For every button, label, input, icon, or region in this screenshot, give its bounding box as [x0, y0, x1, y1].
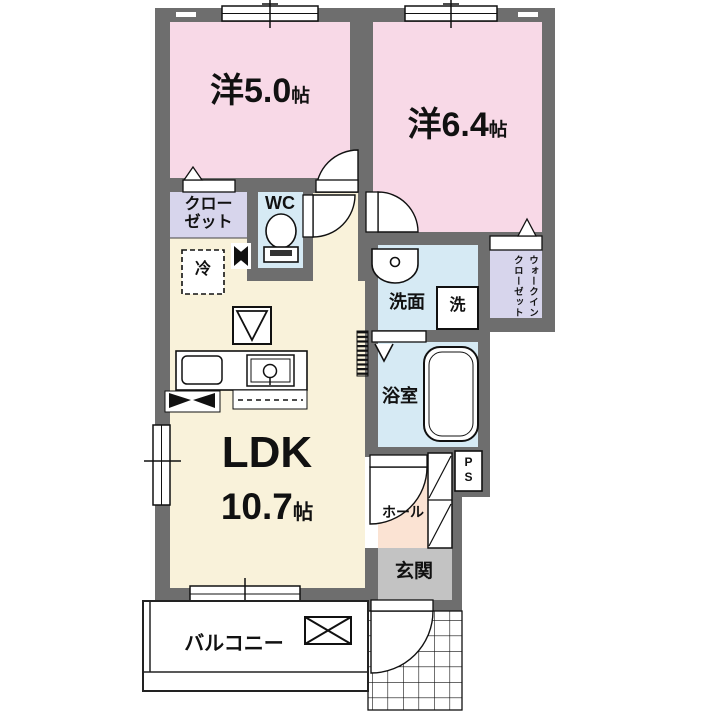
wc-label: WC: [256, 193, 304, 213]
washroom-label: 洗面: [376, 292, 438, 312]
ldk-size-label: 10.7帖: [167, 486, 367, 527]
ldk-label: LDK: [167, 428, 367, 477]
washbasin-icon: [372, 249, 418, 283]
porch: [368, 600, 462, 710]
bedroom1-label: 洋5.0帖: [170, 72, 350, 110]
entrance-door-leaf: [371, 600, 433, 611]
vent-marker-small: [231, 243, 251, 269]
balcony-drain-box: [305, 617, 351, 644]
fridge-label: 冷: [182, 261, 224, 279]
wall-joint-mark: [176, 12, 196, 17]
entrance-label: 玄関: [376, 561, 452, 582]
balcony-label: バルコニー: [158, 633, 310, 655]
floor-plan-drawing: [0, 0, 720, 720]
sink-icon: [247, 355, 294, 386]
vent-marker-kitchen: [165, 391, 220, 412]
toilet-icon: [264, 214, 298, 262]
bathtub-icon: [424, 347, 478, 441]
wic-label: ウォークイン クローゼット: [494, 252, 540, 320]
shoe-cabinet-icon: [428, 453, 452, 548]
bedroom2-label: 洋6.4帖: [373, 106, 542, 144]
hatch-strip: [357, 331, 368, 376]
ps-label: PS: [461, 455, 476, 485]
bathroom-label: 浴室: [374, 386, 426, 406]
stove-icon: [182, 356, 222, 384]
hall-label: ホール: [374, 505, 432, 521]
closet-label: クローゼット: [168, 196, 249, 232]
range-hood-icon: [233, 307, 271, 344]
washer-label: 洗: [437, 297, 478, 315]
wall-joint-mark: [518, 12, 538, 17]
floor-plan: 洋5.0帖 洋6.4帖 LDK 10.7帖 クローゼット WC 冷 洗面 洗 浴…: [0, 0, 720, 720]
